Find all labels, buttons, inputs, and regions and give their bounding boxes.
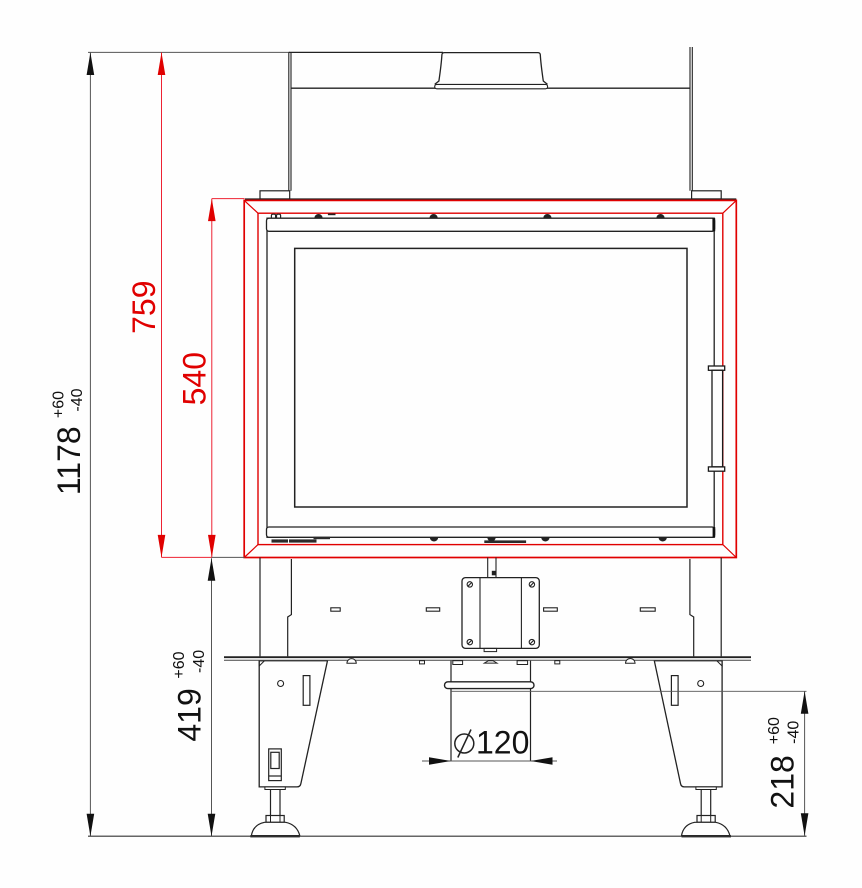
svg-text:-40: -40 [785,721,802,744]
svg-text:+60: +60 [766,717,783,744]
svg-text:+60: +60 [171,651,188,678]
svg-text:-40: -40 [191,650,208,673]
svg-text:1178: 1178 [51,426,87,495]
svg-text:120: 120 [476,725,529,761]
svg-text:+60: +60 [51,391,68,418]
svg-text:-40: -40 [69,388,86,411]
svg-text:218: 218 [765,755,801,808]
svg-text:759: 759 [126,281,162,334]
svg-text:419: 419 [172,688,208,741]
svg-text:540: 540 [177,352,213,405]
